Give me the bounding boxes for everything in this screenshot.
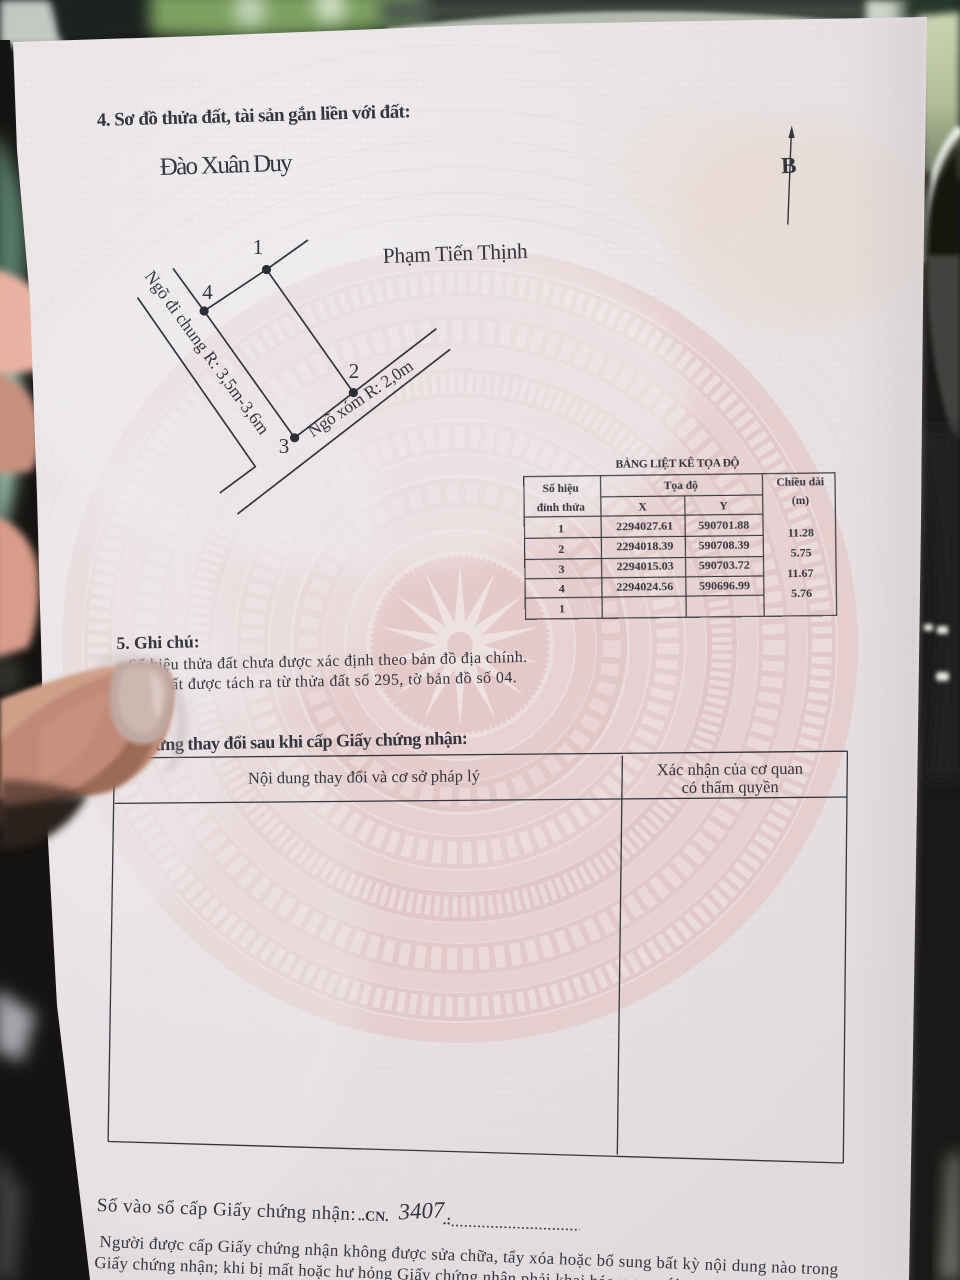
- svg-text:4: 4: [202, 280, 213, 304]
- svg-text:.:: .:: [443, 1213, 452, 1228]
- svg-text:2294018.39: 2294018.39: [616, 538, 673, 553]
- svg-text:3: 3: [558, 562, 564, 576]
- svg-text:Chiều dài: Chiều dài: [776, 475, 825, 489]
- svg-text:3407: 3407: [397, 1197, 447, 1225]
- svg-text:590708.39: 590708.39: [698, 537, 749, 552]
- svg-text:Số hiệu: Số hiệu: [542, 482, 579, 495]
- svg-text:Nội dung thay đổi và cơ sở phá: Nội dung thay đổi và cơ sở pháp lý: [248, 766, 481, 787]
- svg-text:Y: Y: [719, 500, 728, 512]
- svg-text:11.28: 11.28: [788, 525, 815, 539]
- svg-text:1: 1: [558, 521, 564, 535]
- svg-text:Phạm Tiến Thịnh: Phạm Tiến Thịnh: [382, 239, 528, 268]
- svg-text:590696.99: 590696.99: [699, 578, 750, 593]
- svg-text:2: 2: [349, 359, 360, 383]
- svg-text:BẢNG LIỆT KÊ TỌA ĐỘ: BẢNG LIỆT KÊ TỌA ĐỘ: [615, 455, 739, 471]
- svg-text:5. Ghi chú:: 5. Ghi chú:: [116, 631, 200, 653]
- svg-text:3: 3: [279, 434, 290, 458]
- svg-text:11.67: 11.67: [787, 566, 814, 580]
- svg-text:B: B: [781, 153, 797, 179]
- svg-text:5.76: 5.76: [791, 586, 812, 600]
- svg-text:2294027.61: 2294027.61: [616, 518, 673, 533]
- svg-text:(m): (m): [792, 495, 810, 507]
- svg-text:590703.72: 590703.72: [699, 558, 750, 573]
- svg-text:có thẩm quyền: có thẩm quyền: [681, 777, 778, 797]
- svg-text:Đào Xuân Duy: Đào Xuân Duy: [159, 150, 293, 181]
- svg-text:Tọa độ: Tọa độ: [664, 480, 699, 492]
- svg-text:4: 4: [559, 581, 565, 595]
- svg-text:590701.88: 590701.88: [698, 517, 749, 532]
- svg-text:2294024.56: 2294024.56: [616, 579, 673, 594]
- svg-text:5.75: 5.75: [791, 545, 812, 559]
- svg-text:..CN.: ..CN.: [358, 1209, 389, 1225]
- svg-text:1: 1: [253, 235, 264, 259]
- svg-text:1: 1: [559, 601, 565, 615]
- svg-text:2294015.03: 2294015.03: [617, 559, 674, 574]
- svg-text:2: 2: [558, 542, 564, 556]
- svg-text:đỉnh thửa: đỉnh thửa: [537, 502, 586, 515]
- svg-text:X: X: [638, 501, 647, 513]
- svg-text:Xác nhận của cơ quan: Xác nhận của cơ quan: [657, 759, 803, 780]
